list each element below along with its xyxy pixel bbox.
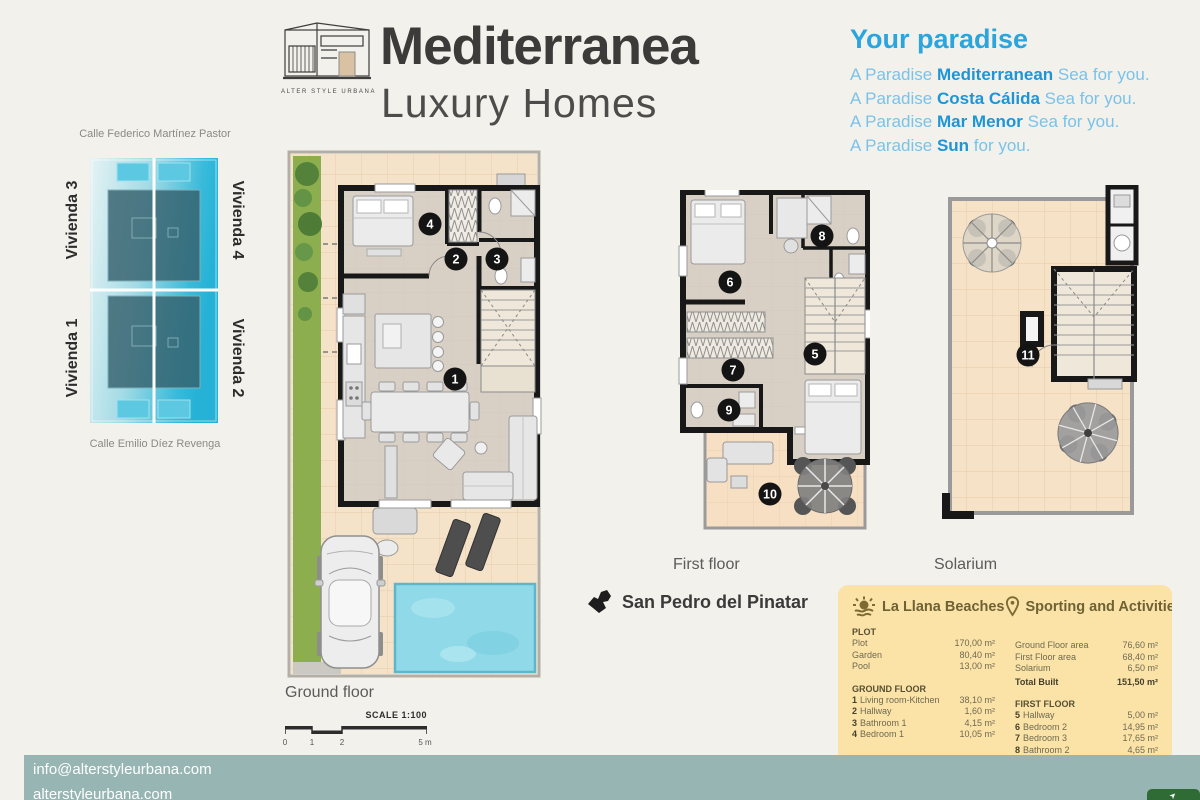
paradise-line: A Paradise Mar Menor Sea for you.	[850, 110, 1180, 134]
table-row: Pool13,00 m²	[852, 661, 995, 673]
room-marker-8: 8	[811, 225, 834, 248]
vent-box	[1020, 311, 1044, 347]
street-name-bottom: Calle Emilio Díez Revenga	[40, 438, 270, 450]
svg-text:9: 9	[726, 404, 733, 418]
plot-section-title: PLOT	[852, 626, 995, 638]
arrow-icon: ➤	[1168, 791, 1178, 800]
wardrobe	[449, 190, 477, 242]
table-row: Ground Floor area76,60 m²	[1015, 640, 1158, 652]
svg-text:11: 11	[1021, 349, 1034, 363]
unit-label-vivienda-3: Vivienda 3	[64, 181, 82, 260]
room-marker-9: 9	[718, 399, 741, 422]
bed	[805, 380, 861, 454]
table-row: 3Bathroom 14,15 m²	[852, 718, 995, 730]
unit-label-vivienda-2: Vivienda 2	[228, 319, 246, 398]
room-marker-4: 4	[419, 213, 442, 236]
svg-text:5: 5	[812, 348, 819, 362]
first-floor-plan: 8 6 5 7 9 10	[675, 190, 870, 545]
stairs	[481, 290, 535, 392]
room-marker-1: 1	[444, 368, 467, 391]
svg-text:1: 1	[452, 373, 459, 387]
brand-title: Mediterranea	[380, 16, 698, 77]
car-icon	[315, 536, 385, 668]
website-link[interactable]: alterstyleurbana.com	[33, 786, 172, 800]
room-marker-2: 2	[445, 248, 468, 271]
room-marker-7: 7	[722, 359, 745, 382]
location-pin-icon	[1005, 595, 1020, 618]
brand-subtitle: Luxury Homes	[381, 80, 657, 127]
unit-label-vivienda-4: Vivienda 4	[228, 181, 246, 260]
table-row: 6Bedroom 214,95 m²	[1015, 722, 1158, 734]
logo-caption: ALTER STYLE URBANA	[281, 89, 373, 95]
scale-ruler	[285, 726, 427, 736]
table-row: 5Hallway5,00 m²	[1015, 710, 1158, 722]
brochure-page: ALTER STYLE URBANA Mediterranea Luxury H…	[0, 0, 1200, 800]
footer-bar: info@alterstyleurbana.com alterstyleurba…	[24, 755, 1200, 800]
room-marker-10: 10	[759, 483, 782, 506]
municipality-silhouette-icon	[585, 588, 613, 616]
paradise-line: A Paradise Costa Cálida Sea for you.	[850, 87, 1180, 111]
first-floor-section-title: FIRST FLOOR	[1015, 698, 1158, 710]
ground-floor-label: Ground floor	[285, 684, 374, 702]
table-row: First Floor area68,40 m²	[1015, 652, 1158, 664]
utility-room	[1108, 187, 1136, 263]
bed	[691, 200, 745, 264]
logo-house-sketch	[281, 20, 373, 82]
svg-text:4: 4	[427, 218, 434, 232]
table-row: 7Bedroom 317,65 m²	[1015, 733, 1158, 745]
contact-email[interactable]: info@alterstyleurbana.com	[33, 761, 212, 778]
site-plan: Calle Federico Martínez Pastor Calle Emi…	[40, 124, 270, 459]
table-row: Solarium6,50 m²	[1015, 663, 1158, 675]
first-floor-label: First floor	[673, 556, 740, 574]
sun-beach-icon	[852, 596, 876, 618]
room-marker-11: 11	[1017, 344, 1040, 367]
svg-text:7: 7	[730, 364, 737, 378]
beaches-header: La Llana Beaches	[852, 595, 1005, 618]
unit-label-vivienda-1: Vivienda 1	[64, 319, 82, 398]
ground-floor-plan: 4 2 3 1	[283, 148, 545, 680]
parasol-table	[794, 457, 856, 515]
paradise-line: A Paradise Sun for you.	[850, 134, 1180, 158]
svg-text:8: 8	[819, 230, 826, 244]
solarium-label: Solarium	[934, 556, 997, 574]
ground-floor-section-title: GROUND FLOOR	[852, 683, 995, 695]
room-marker-5: 5	[804, 343, 827, 366]
svg-text:6: 6	[727, 276, 734, 290]
table-row: Plot170,00 m²	[852, 638, 995, 650]
site-plan-map	[90, 158, 218, 423]
scale-label: SCALE 1:100	[365, 710, 427, 720]
solarium-plan: 11	[940, 185, 1140, 545]
total-built-row: Total Built151,50 m²	[1015, 677, 1158, 689]
room-marker-6: 6	[719, 271, 742, 294]
svg-text:10: 10	[763, 488, 777, 502]
company-logo: ALTER STYLE URBANA	[281, 20, 373, 95]
table-row: 4Bedroom 110,05 m²	[852, 729, 995, 741]
corner-arrow-button[interactable]: ➤	[1147, 789, 1200, 800]
svg-text:2: 2	[453, 253, 460, 267]
street-name-top: Calle Federico Martínez Pastor	[40, 128, 270, 140]
table-row: Garden80,40 m²	[852, 650, 995, 662]
parasol-table	[963, 214, 1021, 272]
pool	[395, 584, 535, 672]
paradise-line: A Paradise Mediterranean Sea for you.	[850, 63, 1180, 87]
svg-text:3: 3	[494, 253, 501, 267]
room-marker-3: 3	[486, 248, 509, 271]
table-row: 2Hallway1,60 m²	[852, 706, 995, 718]
location-block: San Pedro del Pinatar	[585, 588, 808, 616]
sports-header: Sporting and Activities	[1005, 595, 1173, 618]
paradise-block: Your paradise A Paradise Mediterranean S…	[850, 24, 1180, 157]
paradise-title: Your paradise	[850, 24, 1180, 55]
scale-bar: SCALE 1:100 0 1 2 5 m	[285, 710, 427, 752]
location-name: San Pedro del Pinatar	[622, 592, 808, 613]
table-row: 1Living room-Kitchen38,10 m²	[852, 695, 995, 707]
